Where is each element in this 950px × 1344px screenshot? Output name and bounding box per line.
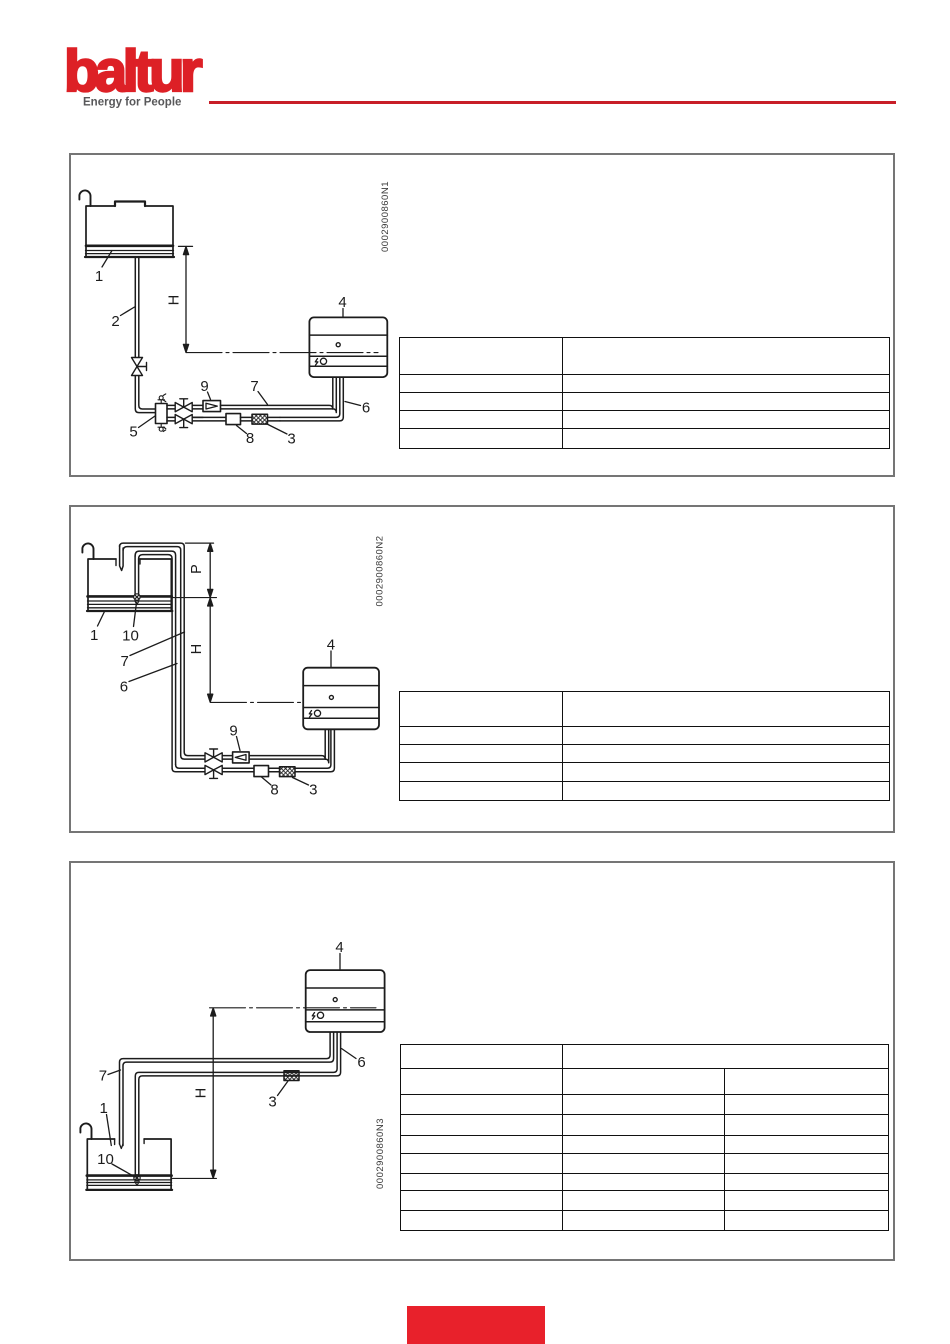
svg-text:10: 10: [97, 1151, 114, 1168]
svg-text:4: 4: [327, 637, 335, 654]
svg-text:1: 1: [100, 1100, 108, 1117]
svg-text:10: 10: [122, 628, 139, 645]
svg-text:6: 6: [120, 679, 128, 696]
svg-text:9: 9: [229, 723, 237, 740]
svg-text:1: 1: [95, 268, 103, 285]
svg-text:3: 3: [309, 782, 317, 799]
svg-text:3: 3: [268, 1094, 276, 1111]
svg-text:0002900860N2: 0002900860N2: [375, 536, 386, 607]
svg-text:8: 8: [270, 782, 278, 799]
svg-text:6: 6: [362, 400, 370, 417]
svg-text:6: 6: [357, 1054, 365, 1071]
svg-text:0002900860N1: 0002900860N1: [380, 181, 391, 252]
svg-text:0002900860N3: 0002900860N3: [375, 1118, 386, 1189]
svg-text:1: 1: [90, 627, 98, 644]
svg-text:4: 4: [338, 294, 346, 311]
svg-text:H: H: [167, 295, 183, 305]
svg-text:H: H: [194, 1088, 210, 1098]
svg-text:7: 7: [99, 1068, 107, 1085]
svg-text:8: 8: [246, 430, 254, 447]
svg-text:5: 5: [129, 424, 137, 441]
svg-text:9: 9: [200, 378, 208, 395]
svg-text:3: 3: [287, 431, 295, 448]
svg-text:H: H: [189, 644, 205, 654]
svg-text:4: 4: [335, 939, 343, 956]
svg-text:2: 2: [111, 313, 119, 330]
svg-text:7: 7: [250, 378, 258, 395]
svg-text:7: 7: [121, 653, 129, 670]
svg-text:P: P: [189, 564, 205, 574]
